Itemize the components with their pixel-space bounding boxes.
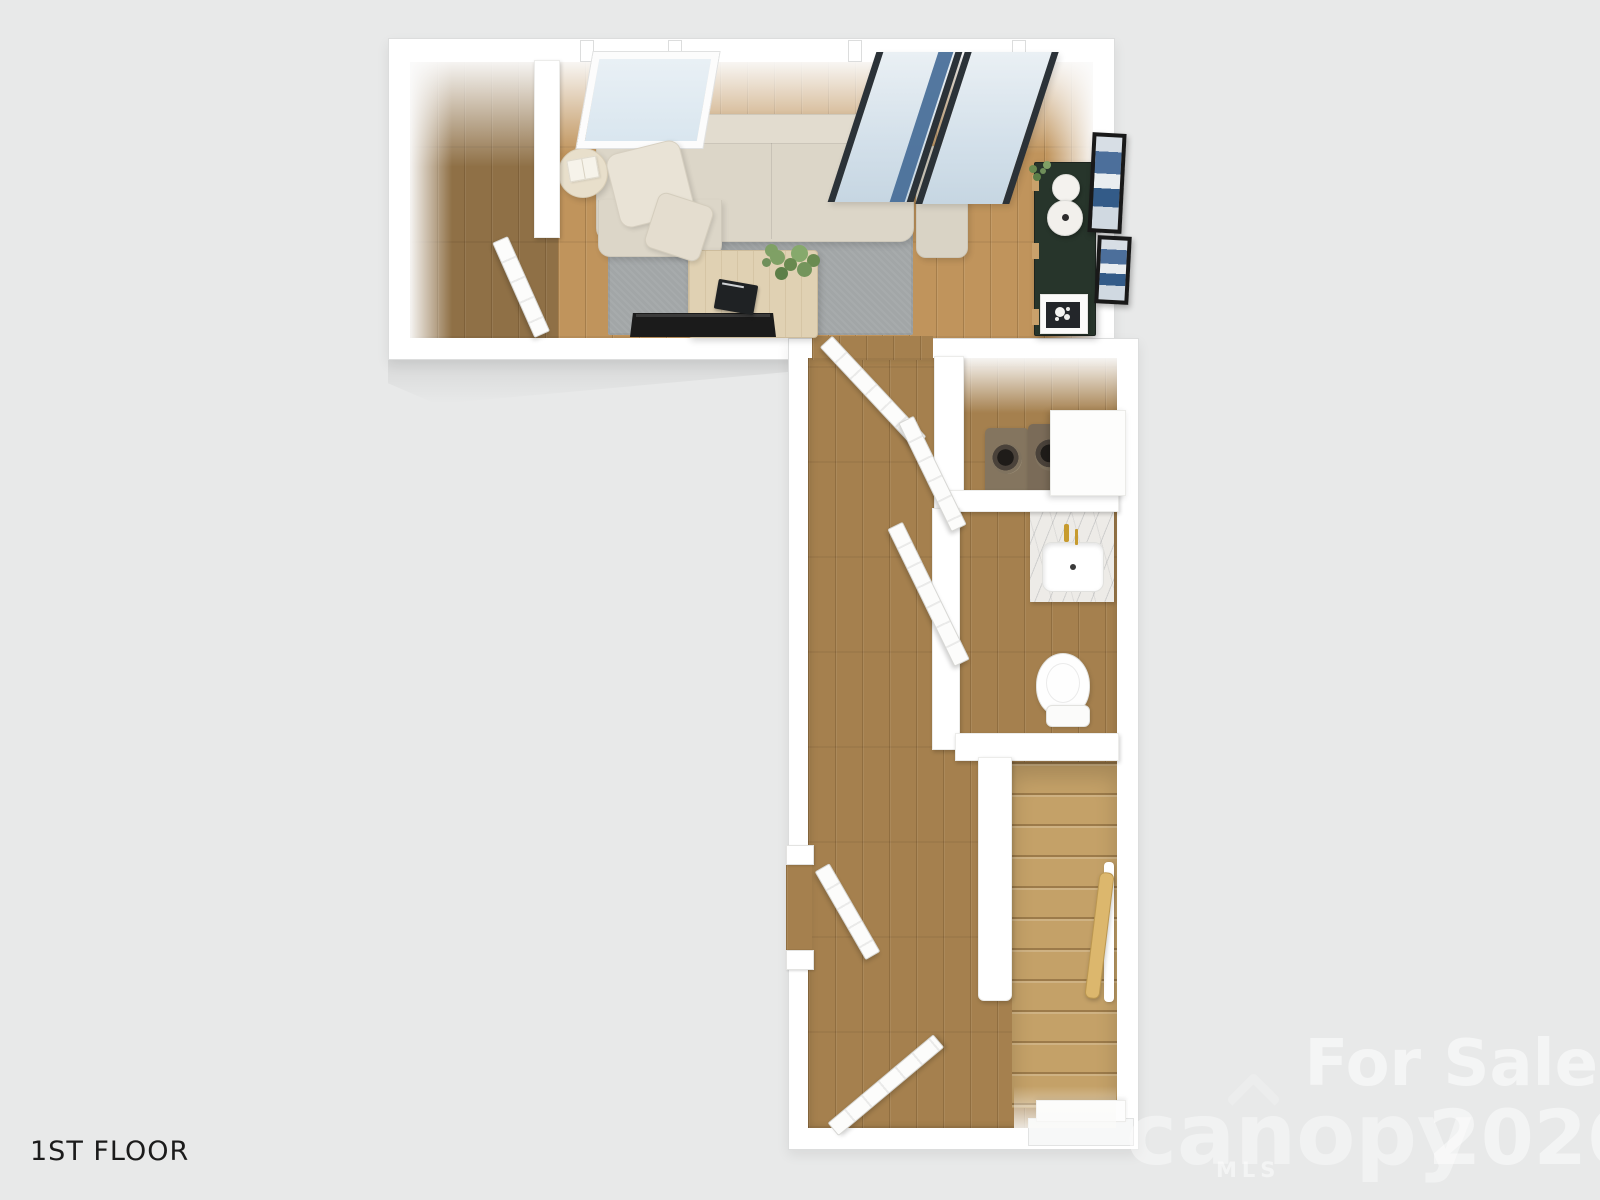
framed-art-small xyxy=(1094,235,1132,305)
book-title-line xyxy=(722,282,744,288)
sofa-seat-split xyxy=(771,143,772,239)
watermark-year: 2026 xyxy=(1428,1100,1600,1176)
side-door-jamb-bottom xyxy=(786,950,814,970)
left-door-opening-floor xyxy=(786,862,812,951)
laundry-counter xyxy=(1050,410,1126,496)
sink-drain xyxy=(1070,564,1076,570)
foyer-partition-wall xyxy=(534,60,560,238)
watermark-brand-text: canopy xyxy=(1126,1085,1473,1185)
framed-art-large xyxy=(1087,132,1126,234)
gold-faucet xyxy=(1064,524,1069,542)
vase-mouth xyxy=(1062,214,1069,221)
watermark-for-sale: For Sale xyxy=(1304,1032,1598,1096)
floorplan-canvas: 1ST FLOOR For Sale canopy MLS 2026 xyxy=(0,0,1600,1200)
tv-screen xyxy=(630,313,776,337)
toilet-seat-ring xyxy=(1046,663,1080,703)
console-plant-sprig xyxy=(1040,168,1046,174)
console-shelf-leg-2 xyxy=(1032,243,1039,259)
watermark-canopy-logo: canopy xyxy=(1126,1092,1473,1178)
table-plant xyxy=(762,258,771,267)
console-shelf-leg-3 xyxy=(1032,309,1039,325)
floor-label: 1ST FLOOR xyxy=(30,1136,189,1167)
skylight-window xyxy=(577,52,720,148)
white-flower-decor xyxy=(1055,307,1065,317)
decor-tray xyxy=(1040,294,1088,334)
washer-drum xyxy=(992,444,1022,474)
canopy-caret-icon xyxy=(1226,1072,1281,1127)
hall-stairs-wall xyxy=(978,757,1012,1001)
white-vase-small xyxy=(1052,174,1080,202)
side-door-jamb-top xyxy=(786,845,814,865)
watermark-mls: MLS xyxy=(1216,1160,1280,1181)
toilet-tank xyxy=(1046,705,1090,727)
console-shelf-leg-1 xyxy=(1032,175,1039,191)
entry-floor-light xyxy=(1014,1086,1116,1128)
wall-shadow xyxy=(388,358,790,404)
window-frame-tab-3 xyxy=(848,40,862,62)
foyer-west-wall-face xyxy=(410,62,452,338)
washer xyxy=(985,428,1029,494)
white-vase-large xyxy=(1047,200,1083,236)
laundry-north-wall-face xyxy=(940,358,1117,413)
vanity-sink xyxy=(1042,542,1104,592)
book-spine xyxy=(581,159,585,179)
